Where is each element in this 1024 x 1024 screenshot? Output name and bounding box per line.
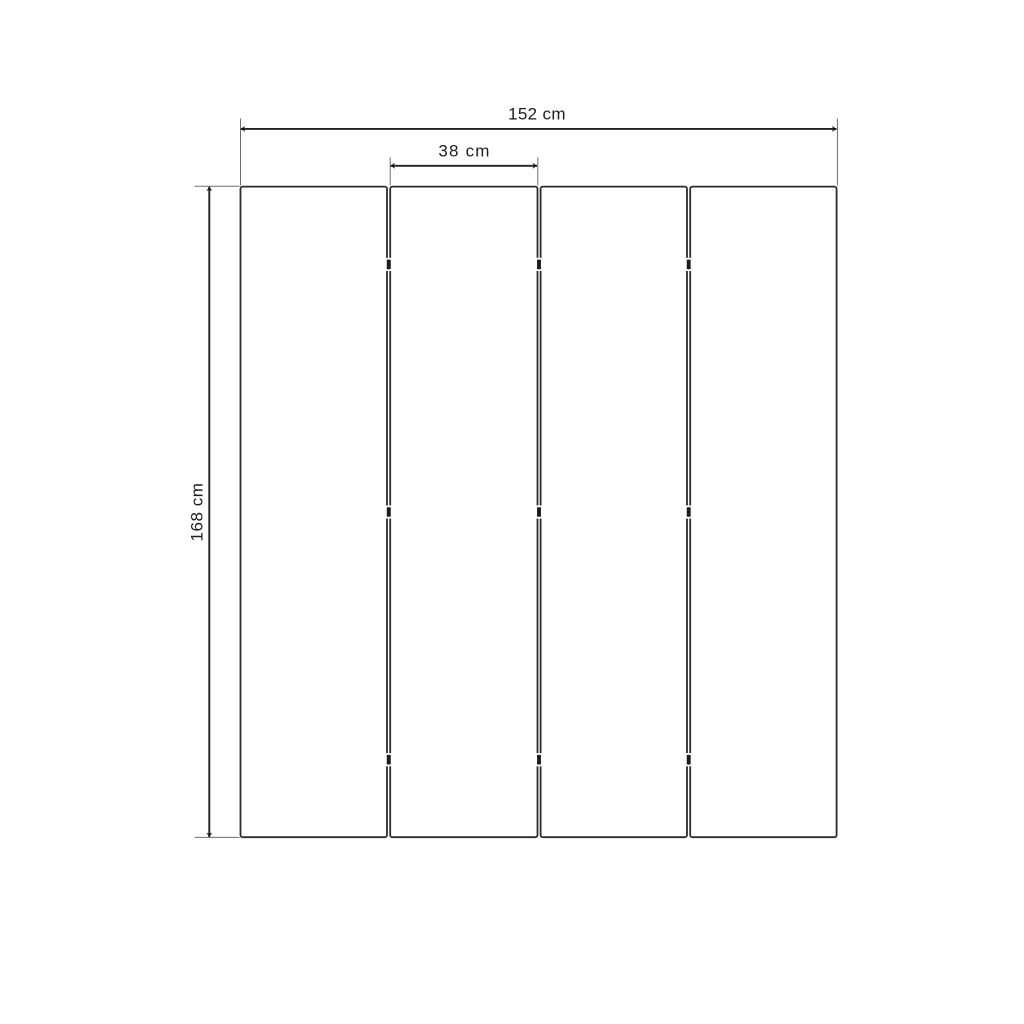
svg-text:38 cm: 38 cm <box>438 142 490 161</box>
svg-text:168 cm: 168 cm <box>187 482 206 541</box>
svg-text:152 cm: 152 cm <box>508 105 566 124</box>
